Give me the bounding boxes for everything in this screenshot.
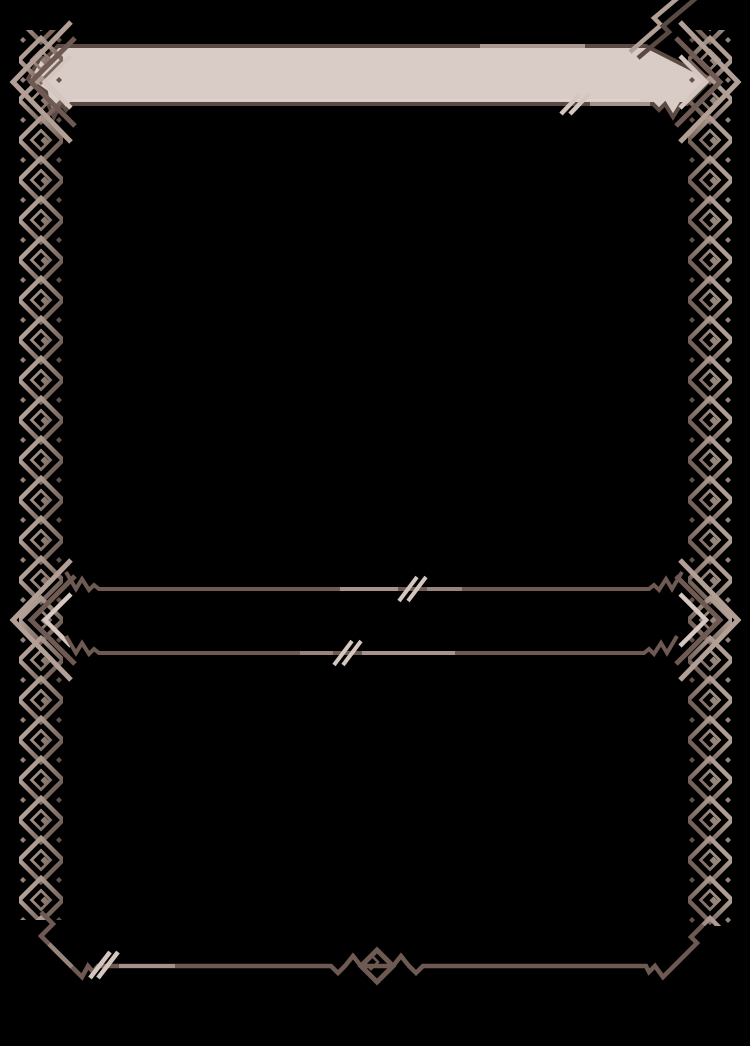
- frame-artwork: [0, 0, 750, 1046]
- diamond-chain-border-left: [19, 30, 63, 920]
- zigzag-divider-upper: [66, 572, 682, 601]
- zigzag-bottom-border: [41, 912, 703, 982]
- zigzag-divider-lower: [66, 636, 677, 665]
- ornate-frame: [0, 0, 750, 1046]
- banner-title-text: [70, 56, 630, 100]
- diamond-chain-border-right: [688, 30, 732, 926]
